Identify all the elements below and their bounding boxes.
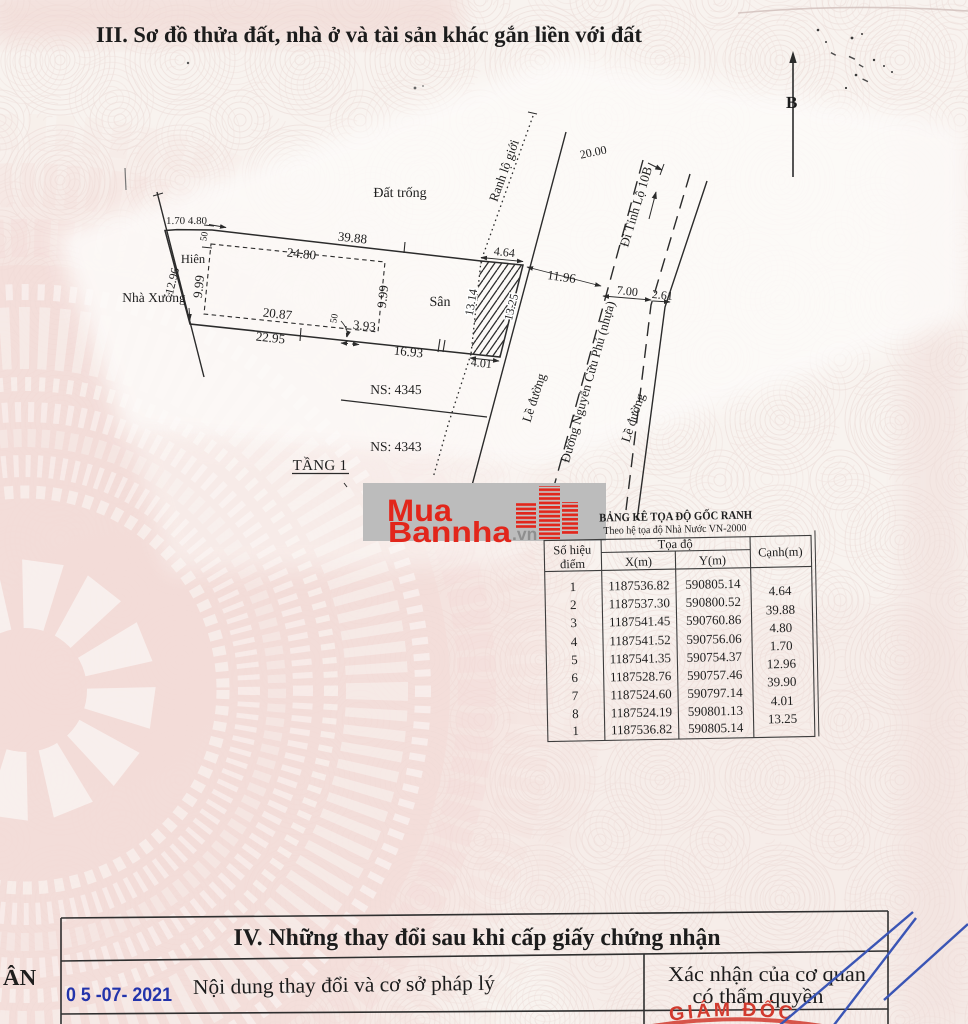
svg-text:4.01: 4.01 [771, 693, 794, 708]
svg-text:590754.37: 590754.37 [687, 649, 743, 665]
svg-text:B: B [786, 93, 797, 112]
svg-text:Đất trống: Đất trống [373, 186, 426, 201]
svg-text:9.99: 9.99 [374, 284, 391, 308]
svg-text:1187536.82: 1187536.82 [608, 577, 670, 593]
svg-text:4.64: 4.64 [493, 244, 515, 260]
svg-text:X(m): X(m) [625, 555, 652, 570]
svg-text:590805.14: 590805.14 [685, 576, 741, 592]
svg-text:1187524.19: 1187524.19 [611, 704, 673, 720]
svg-text:50: 50 [199, 231, 211, 242]
svg-text:Nội dung thay đổi và cơ sở phá: Nội dung thay đổi và cơ sở pháp lý [193, 971, 496, 999]
svg-text:1187537.30: 1187537.30 [609, 595, 671, 611]
svg-text:1.70 4.80: 1.70 4.80 [166, 216, 207, 227]
svg-text:TẦNG 1: TẦNG 1 [293, 456, 348, 474]
svg-text:Y(m): Y(m) [699, 553, 726, 568]
svg-text:2: 2 [570, 597, 577, 612]
svg-text:1187541.52: 1187541.52 [609, 632, 671, 648]
svg-text:20.87: 20.87 [262, 305, 293, 323]
svg-text:ÂN: ÂN [3, 965, 37, 990]
svg-text:điểm: điểm [560, 557, 586, 571]
svg-text:12.96: 12.96 [767, 656, 797, 672]
svg-text:590760.86: 590760.86 [686, 612, 742, 628]
svg-text:NS: 4345: NS: 4345 [370, 382, 422, 397]
svg-text:590757.46: 590757.46 [687, 667, 743, 683]
svg-text:39.88: 39.88 [337, 229, 368, 247]
svg-text:1.70: 1.70 [770, 638, 793, 653]
svg-text:1187524.60: 1187524.60 [610, 686, 672, 702]
svg-text:16.93: 16.93 [393, 343, 424, 361]
svg-text:8: 8 [572, 706, 579, 721]
svg-text:Nhà Xưởng: Nhà Xưởng [122, 290, 186, 305]
svg-text:50: 50 [329, 313, 341, 324]
svg-text:13.25: 13.25 [768, 711, 798, 727]
svg-text:Hiên: Hiên [181, 252, 206, 266]
svg-text:Bannha: Bannha [388, 517, 512, 549]
svg-text:6: 6 [571, 670, 578, 685]
svg-text:1187541.35: 1187541.35 [610, 650, 672, 666]
svg-text:39.90: 39.90 [767, 674, 797, 690]
svg-text:1: 1 [572, 723, 579, 738]
svg-text:1187536.82: 1187536.82 [611, 721, 673, 737]
svg-text:Cạnh(m): Cạnh(m) [758, 545, 803, 560]
svg-text:4: 4 [571, 634, 578, 649]
svg-text:BẢNG KÊ TỌA ĐỘ GỐC RANH: BẢNG KÊ TỌA ĐỘ GỐC RANH [599, 508, 752, 525]
svg-text:7: 7 [572, 688, 579, 703]
svg-text:III. Sơ đồ thửa đất, nhà ở và: III. Sơ đồ thửa đất, nhà ở và tài sản kh… [96, 22, 643, 47]
svg-text:Tọa độ: Tọa độ [657, 537, 692, 552]
svg-text:590801.13: 590801.13 [688, 703, 744, 719]
svg-text:NS: 4343: NS: 4343 [370, 439, 422, 454]
svg-text:4.80: 4.80 [769, 620, 792, 635]
svg-text:0 5 -07- 2021: 0 5 -07- 2021 [66, 984, 172, 1006]
svg-text:Sân: Sân [430, 295, 451, 310]
svg-text:24.80: 24.80 [286, 245, 317, 263]
svg-text:1187541.45: 1187541.45 [609, 613, 671, 629]
svg-text:22.95: 22.95 [255, 329, 286, 347]
svg-text:590800.52: 590800.52 [686, 594, 742, 610]
svg-text:4.64: 4.64 [769, 583, 793, 598]
svg-text:4.01: 4.01 [470, 355, 492, 371]
svg-text:9.99: 9.99 [190, 274, 207, 298]
svg-text:5: 5 [571, 652, 578, 667]
svg-text:590805.14: 590805.14 [688, 720, 744, 736]
svg-text:590756.06: 590756.06 [686, 631, 742, 647]
svg-text:IV. Những thay đổi sau khi cấp: IV. Những thay đổi sau khi cấp giấy chứn… [234, 925, 721, 951]
svg-text:1187528.76: 1187528.76 [610, 668, 672, 684]
svg-text:7.00: 7.00 [616, 283, 638, 299]
svg-text:Xác nhận của cơ quan: Xác nhận của cơ quan [668, 962, 867, 986]
svg-text:3.93: 3.93 [352, 317, 376, 334]
svg-text:39.88: 39.88 [766, 602, 796, 618]
svg-text:590797.14: 590797.14 [687, 685, 743, 701]
svg-text:3: 3 [570, 615, 577, 630]
svg-text:Số hiệu: Số hiệu [553, 543, 592, 558]
svg-text:1: 1 [570, 579, 577, 594]
